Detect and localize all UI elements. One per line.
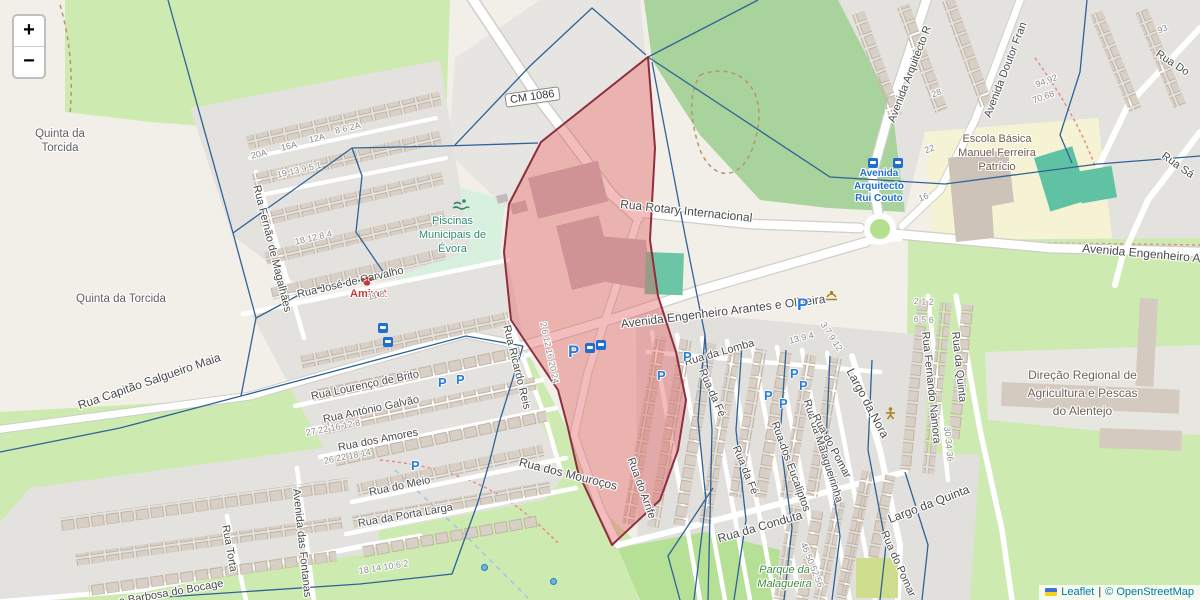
attribution-separator: | bbox=[1098, 586, 1101, 598]
zoom-control: + − bbox=[12, 14, 46, 79]
bus-stop-icon bbox=[868, 158, 878, 168]
leaflet-link[interactable]: Leaflet bbox=[1061, 586, 1094, 598]
bus-stop-icon bbox=[378, 323, 388, 333]
map-canvas[interactable]: Rua Fernão de Magalhães Rua José de Carv… bbox=[0, 0, 1200, 600]
fountain-dot-icon bbox=[481, 564, 488, 571]
zoom-in-button[interactable]: + bbox=[14, 16, 44, 47]
map-tile-layer bbox=[0, 0, 1200, 600]
bus-stop-icon bbox=[596, 340, 606, 350]
zoom-out-button[interactable]: − bbox=[14, 47, 44, 77]
attribution-bar: Leaflet | © OpenStreetMap bbox=[1039, 585, 1200, 600]
openstreetmap-link[interactable]: © OpenStreetMap bbox=[1105, 586, 1194, 598]
bus-stop-icon bbox=[893, 158, 903, 168]
ukraine-flag-icon bbox=[1045, 588, 1057, 596]
bus-stop-icon bbox=[383, 337, 393, 347]
bus-stop-icon bbox=[585, 343, 595, 353]
fountain-dot-icon bbox=[550, 578, 557, 585]
